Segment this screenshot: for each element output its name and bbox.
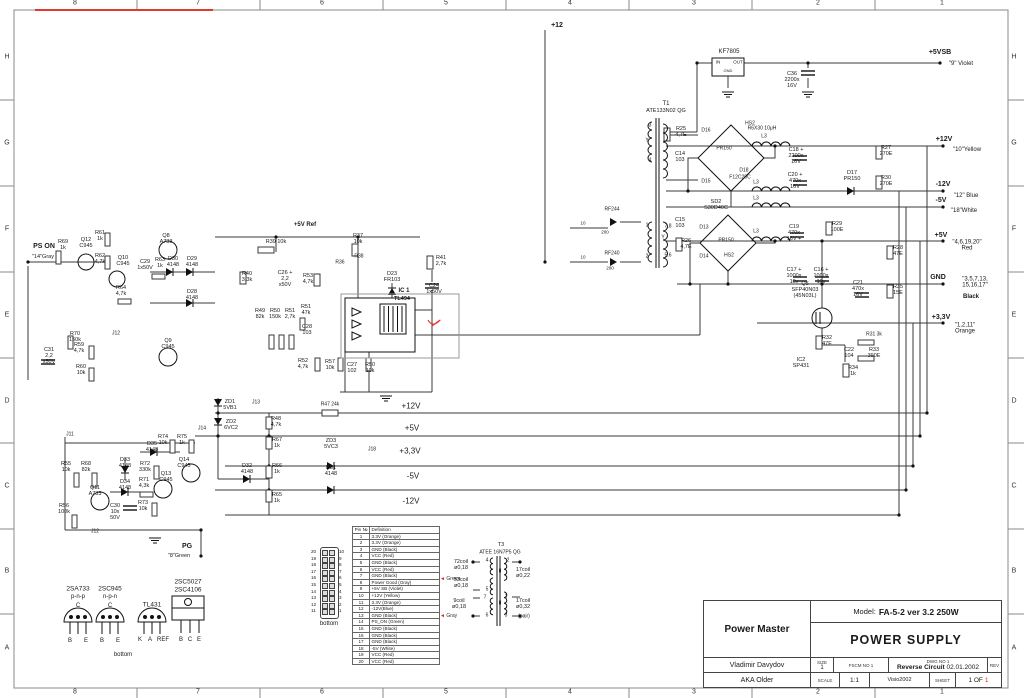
component-label: D15 xyxy=(701,179,710,184)
pin-definition: VCC (Red) xyxy=(370,566,440,573)
component-label: T1 xyxy=(662,101,669,107)
component-label: R75 1k xyxy=(177,435,187,447)
annotation-marker-icon: ◄ xyxy=(440,576,445,582)
connector-pin-left: 12 xyxy=(311,602,316,609)
pin-row: 13GND (Black) xyxy=(353,612,440,619)
border-col-label: 3 xyxy=(692,689,696,696)
pin-row: 10+12V (Yellow) xyxy=(353,592,440,599)
pin-number: 15 xyxy=(353,625,370,632)
component-label: +5V xyxy=(405,425,419,434)
component-label: p-n-p xyxy=(71,594,85,600)
component-label: D23 FR103 xyxy=(384,272,401,284)
connector-row: 111 xyxy=(311,608,345,615)
component-label: R50 150k xyxy=(269,309,281,321)
def-col-header: Definition xyxy=(370,527,440,534)
component-label: L3 xyxy=(761,134,767,139)
component-label: 200 xyxy=(601,231,609,236)
component-label: R38 xyxy=(354,254,363,259)
component-label: OUT xyxy=(733,61,743,66)
component-label: D17 PR150 xyxy=(844,171,861,183)
component-label: 3 xyxy=(505,613,508,618)
component-label: C26 + 2,2 x50V xyxy=(278,271,293,289)
border-row-label: B xyxy=(5,568,10,575)
connector-pin-left: 19 xyxy=(311,556,316,563)
component-label: R72 330k xyxy=(139,462,151,474)
dwg-name: Reverse Circuit xyxy=(897,664,945,671)
component-label: L3 xyxy=(753,180,759,185)
component-label: C18 + 2200x 16V xyxy=(789,148,804,166)
component-label: C30 10x 50V xyxy=(110,504,120,522)
component-label: GND xyxy=(724,69,733,73)
pin-number: 3 xyxy=(353,546,370,553)
tool-name: Visio2002 xyxy=(869,672,930,688)
component-label: R36 xyxy=(335,260,344,265)
component-label: Black xyxy=(963,294,979,300)
component-label: PG xyxy=(182,543,192,551)
component-label: D13 xyxy=(699,225,708,230)
connector-pin-right: 9 xyxy=(339,556,342,563)
component-label: R26 4,7E xyxy=(680,239,691,251)
rev-cell: REV xyxy=(987,657,1002,673)
border-row-label: D xyxy=(4,398,9,405)
pin-number: 18 xyxy=(353,645,370,652)
connector-row: 2010 xyxy=(311,549,345,556)
component-label: R39 10k xyxy=(266,240,287,246)
component-label: R51 47k xyxy=(301,305,311,317)
border-col-label: 8 xyxy=(73,0,77,7)
component-label: C20 + 470x 16V xyxy=(788,173,803,191)
dwg-date: 02.01.2002 xyxy=(946,664,979,671)
component-label: R28 47E xyxy=(893,246,903,258)
pin-row: 17GND (Black) xyxy=(353,639,440,646)
pin-definition: 3.3V (Orange) xyxy=(370,599,440,606)
pin-definition: GND (Black) xyxy=(370,573,440,580)
component-label: T3 xyxy=(498,543,504,549)
border-row-label: C xyxy=(1011,483,1016,490)
pin-row: 14PS_ON (Green) xyxy=(353,619,440,626)
border-row-label: E xyxy=(1012,312,1017,319)
component-label: R27 270E xyxy=(880,146,893,158)
connector-row: 199 xyxy=(311,556,345,563)
component-label: R64 4,7k xyxy=(116,286,126,298)
component-label: D34 4148 xyxy=(119,480,131,492)
component-label: TL494 xyxy=(394,297,410,303)
component-label: KF7805 xyxy=(718,49,739,55)
component-label: R69 1k xyxy=(58,240,68,252)
size-value: 1 xyxy=(820,665,823,671)
component-label: R68 82k xyxy=(81,462,91,474)
connector-pin-hole xyxy=(329,609,335,615)
pin-row: 18-5V (White) xyxy=(353,645,440,652)
pin-row: 19VCC (Red) xyxy=(353,652,440,659)
component-label: 7,8 xyxy=(665,224,672,229)
component-label: 2SC945 xyxy=(98,585,122,592)
component-label: SD2 S30D40C xyxy=(704,200,728,212)
connector-pin-right: 2 xyxy=(339,602,342,609)
pin-definition: 3.3V (Orange) xyxy=(370,540,440,547)
component-label: D18 xyxy=(739,168,748,173)
border-col-label: 4 xyxy=(568,689,572,696)
pin-definition: GND (Black) xyxy=(370,625,440,632)
pin-number: 13 xyxy=(353,612,370,619)
component-label: B xyxy=(68,638,72,644)
component-label: 7 xyxy=(484,595,487,600)
component-label: C xyxy=(108,603,112,609)
component-label: R60 10k xyxy=(76,365,86,377)
connector-pin-left: 15 xyxy=(311,582,316,589)
connector-pin-right: 10 xyxy=(339,549,344,556)
component-label: D33 4148 xyxy=(119,458,131,470)
component-label: 72coil ø0,18 xyxy=(454,560,468,572)
border-col-label: 1 xyxy=(940,0,944,7)
component-label: REF xyxy=(157,637,169,643)
component-label: E xyxy=(116,638,120,644)
border-col-label: 6 xyxy=(320,0,324,7)
component-label: Q5 SFP40N03 (45N03L) xyxy=(792,282,819,300)
component-label: R73 10k xyxy=(138,501,148,513)
border-row-label: B xyxy=(1012,568,1017,575)
component-label: D35 4148 xyxy=(146,442,158,454)
pin-definition-table: Pin №Definition13.3V (Orange)23.3V (Oran… xyxy=(352,526,440,665)
component-label: R53 4,7k xyxy=(303,274,313,286)
component-label: D32 4148 xyxy=(241,464,253,476)
model-value: FA-5-2 ver 3.2 250W xyxy=(879,607,959,617)
component-label: C xyxy=(76,603,80,609)
component-label: C27 102 xyxy=(347,363,357,375)
pin-row: 15GND (Black) xyxy=(353,625,440,632)
pin-number: 12 xyxy=(353,606,370,613)
component-label: C19 470x 16V + xyxy=(787,225,802,243)
pin-definition: PS_ON (Green) xyxy=(370,619,440,626)
company-name: Power Master xyxy=(703,600,811,658)
component-label: R32 47E xyxy=(822,336,832,348)
component-label: "3,5,7,13, 15,16,17" xyxy=(962,277,988,290)
connector-row: 166 xyxy=(311,575,345,582)
component-label: J12 xyxy=(112,331,120,336)
component-label: Q8 A733 xyxy=(160,234,173,246)
component-label: HS2 xyxy=(724,253,734,258)
component-label: R59 4,7k xyxy=(74,343,84,355)
component-label: Q13 C945 xyxy=(159,472,172,484)
connector-row: 177 xyxy=(311,569,345,576)
connector-row: 188 xyxy=(311,562,345,569)
component-label: R47 24k xyxy=(321,402,340,407)
component-label: II xyxy=(499,601,502,606)
component-label: 5 xyxy=(486,587,489,592)
component-label: C22 104 xyxy=(844,348,854,360)
component-label: II xyxy=(499,569,502,574)
atx-connector-drawing: 2010199188177166155144133122111bottom xyxy=(311,549,345,615)
component-label: "9" Violet xyxy=(949,61,973,67)
connector-pin-hole xyxy=(322,609,328,615)
component-label: 17coil ø0,22 xyxy=(516,568,530,580)
component-label: R61 1k xyxy=(95,231,105,243)
component-label: K xyxy=(138,637,142,643)
pin-row: 6VCC (Red) xyxy=(353,566,440,573)
border-row-label: G xyxy=(1011,140,1016,147)
component-label: 4 xyxy=(486,558,489,563)
author-alias: AKA Older xyxy=(703,672,811,688)
component-label: R35 15E xyxy=(893,285,903,297)
pin-row: 5GND (Black) xyxy=(353,559,440,566)
pin-col-header: Pin № xyxy=(353,527,370,534)
component-label: bottom xyxy=(114,652,132,658)
pin-number: 10 xyxy=(353,592,370,599)
component-label: ZD1 5VB1 xyxy=(223,400,236,412)
component-label: R31 3k xyxy=(866,332,882,337)
component-label: F12C20C xyxy=(729,175,750,180)
component-label: R50 10k xyxy=(365,363,375,375)
component-label: -5V xyxy=(936,197,947,205)
component-label: C24 1x50V xyxy=(426,284,442,296)
component-label: R52 4,7k xyxy=(298,359,308,371)
connector-pin-left: 20 xyxy=(311,549,316,556)
connector-row: 155 xyxy=(311,582,345,589)
pin-row: 23.3V (Orange) xyxy=(353,540,440,547)
pin-row: 113.3V (Orange) xyxy=(353,599,440,606)
component-label: R33 390E xyxy=(868,348,881,360)
component-label: 2SC4106 xyxy=(174,586,201,593)
component-label: +12V xyxy=(402,403,421,412)
annotation-marker-icon: ◄ xyxy=(440,613,445,619)
component-label: R67 1k xyxy=(272,438,282,450)
pin-definition: GND (Black) xyxy=(370,632,440,639)
component-label: 17coil ø0,32 xyxy=(516,599,530,611)
pin-row: 20VCC (Red) xyxy=(353,658,440,665)
component-label: C15 103 xyxy=(675,218,685,230)
component-label: 200 xyxy=(606,267,614,272)
sheet-count: 1 OF xyxy=(968,677,982,684)
rev-label: REV xyxy=(990,663,999,668)
component-label: D30 4148 xyxy=(167,257,179,269)
component-label: R66 1k xyxy=(272,464,282,476)
component-label: IN xyxy=(716,61,721,66)
connector-pin-right: 1 xyxy=(339,608,342,615)
component-label: R63 1k xyxy=(155,258,165,270)
component-label: L3 xyxy=(753,229,759,234)
component-label: R30 270E xyxy=(880,176,893,188)
component-label: R6X30 10μH xyxy=(748,126,777,131)
component-label: "4,6,19,20" Red xyxy=(952,240,981,253)
pin-definition: +5V SB (Violet) xyxy=(370,586,440,593)
border-col-label: 5 xyxy=(444,0,448,7)
component-label: J13 xyxy=(252,400,260,405)
border-row-label: H xyxy=(1011,54,1016,61)
pin-number: 4 xyxy=(353,553,370,560)
pin-row: 16GND (Black) xyxy=(353,632,440,639)
pin-row: 8Power Good (Gray) xyxy=(353,579,440,586)
component-label: "10"Yellow xyxy=(953,147,981,153)
pin-number: 19 xyxy=(353,652,370,659)
border-col-label: 7 xyxy=(196,0,200,7)
border-col-label: 7 xyxy=(196,689,200,696)
component-label: R74 10k xyxy=(158,435,168,447)
border-row-label: G xyxy=(4,140,9,147)
component-label: PR150 xyxy=(718,238,733,243)
pin-number: 20 xyxy=(353,658,370,665)
connector-pin-right: 8 xyxy=(339,562,342,569)
component-label: D16 xyxy=(701,128,710,133)
component-label: B xyxy=(179,637,183,643)
component-label: L3 xyxy=(753,196,759,201)
component-label: 9coil ø0,18 xyxy=(452,599,466,611)
component-label: R41 2,7k xyxy=(436,256,446,268)
component-label: 5,6 xyxy=(665,253,672,258)
component-label: 1 xyxy=(505,594,508,599)
connector-pin-left: 11 xyxy=(311,608,316,615)
connector-pin-right: 6 xyxy=(339,575,342,582)
author-name: Vladimir Davydov xyxy=(703,657,811,673)
pin-number: 8 xyxy=(353,579,370,586)
connector-pin-right: 3 xyxy=(339,595,342,602)
pin-definition: VCC (Red) xyxy=(370,658,440,665)
component-label: 10 xyxy=(580,222,585,227)
pin-definition: GND (Black) xyxy=(370,546,440,553)
scale-label: SCALE xyxy=(810,672,840,688)
border-col-label: 6 xyxy=(320,689,324,696)
connector-row: 133 xyxy=(311,595,345,602)
connector-pin-left: 13 xyxy=(311,595,316,602)
component-label: D28 4148 xyxy=(186,290,198,302)
component-label: "18"White xyxy=(951,208,977,214)
pin-row: 12-12V(Blue) xyxy=(353,606,440,613)
component-label: +3,3V xyxy=(399,448,420,457)
pin-number: 1 xyxy=(353,533,370,540)
sheet-label: SHEET xyxy=(929,672,956,688)
drawing-title: POWER SUPPLY xyxy=(810,622,1002,658)
component-label: "1,2,11" Orange xyxy=(955,323,976,336)
connector-caption: bottom xyxy=(309,621,349,627)
component-label: RF244 xyxy=(604,207,619,212)
component-label: A xyxy=(148,637,152,643)
component-label: Q10 C945 xyxy=(116,256,129,268)
annotation-text: Gray xyxy=(446,613,457,619)
component-label: +5V Ref xyxy=(294,222,316,228)
connector-pin-right: 5 xyxy=(339,582,342,589)
pin-number: 7 xyxy=(353,573,370,580)
component-label: R51 2,7k xyxy=(285,309,295,321)
pin-annotation: ◄ Green xyxy=(440,576,460,582)
pin-definition: VCC (Red) xyxy=(370,553,440,560)
sheet-value: 1 OF 1 xyxy=(955,672,1002,688)
border-row-label: H xyxy=(4,54,9,61)
component-label: R71 4,3k xyxy=(139,478,149,490)
component-label: D14 xyxy=(699,254,708,259)
component-label: E xyxy=(84,638,88,644)
scale-value: 1:1 xyxy=(839,672,870,688)
component-label: R40 3,3k xyxy=(242,272,252,284)
border-row-label: E xyxy=(5,312,10,319)
component-label: C28 103 xyxy=(302,325,312,337)
component-label: R29 100E xyxy=(831,222,844,234)
pin-table: Pin №Definition13.3V (Orange)23.3V (Oran… xyxy=(352,526,440,665)
component-label: C14 103 xyxy=(675,152,685,164)
dwg-value: Reverse Circuit 02.01.2002 xyxy=(897,664,979,671)
pin-definition: GND (Black) xyxy=(370,639,440,646)
border-row-label: F xyxy=(1012,226,1016,233)
component-label: R49 82k xyxy=(255,309,265,321)
pin-row: 13.3V (Orange) xyxy=(353,533,440,540)
component-label: GND xyxy=(930,274,946,282)
component-label: PS ON xyxy=(33,243,55,251)
component-label: "14"Gray xyxy=(32,255,54,261)
component-label: ATEE 16N7P5 QG xyxy=(479,550,520,555)
pin-row: 9+5V SB (Violet) xyxy=(353,586,440,593)
component-label: C31 2,2 x50V xyxy=(43,348,56,366)
connector-pin-left: 18 xyxy=(311,562,316,569)
component-label: R55 10k xyxy=(61,462,71,474)
pin-definition: -5V (White) xyxy=(370,645,440,652)
connector-pin-left: 16 xyxy=(311,575,316,582)
connector-pin-left: 17 xyxy=(311,569,316,576)
component-label: 2 xyxy=(507,558,510,563)
component-label: +12 xyxy=(551,22,563,30)
border-col-label: 5 xyxy=(444,689,448,696)
component-label: n-p-n xyxy=(103,594,117,600)
component-label: ATE133N02 QG xyxy=(646,109,686,115)
component-label: Y xyxy=(661,235,664,240)
component-label: J14 xyxy=(198,426,206,431)
component-label: R34 1k xyxy=(848,366,858,378)
component-label: C xyxy=(188,637,192,643)
component-label: C36 2200x 16V xyxy=(785,72,800,90)
model-label: Model: xyxy=(853,607,876,616)
component-label: R48 4,7k xyxy=(271,417,281,429)
component-label: TL431 xyxy=(143,601,161,608)
component-label: PR150 xyxy=(716,146,731,151)
component-label: ZD2 6VC2 xyxy=(224,420,238,432)
pin-definition: GND (Black) xyxy=(370,612,440,619)
pin-number: 11 xyxy=(353,599,370,606)
pin-definition: VCC (Red) xyxy=(370,652,440,659)
pin-annotation: ◄ Gray xyxy=(440,613,457,619)
pin-number: 16 xyxy=(353,632,370,639)
fscm-cell: FSCM NO 1 xyxy=(833,657,889,673)
pin-row: 3GND (Black) xyxy=(353,546,440,553)
component-label: 4 xyxy=(649,158,652,163)
component-label: Q9 C945 xyxy=(161,339,174,351)
border-col-label: 1 xyxy=(940,689,944,696)
component-label: +5VSB xyxy=(929,49,951,57)
pin-definition: 3.3V (Orange) xyxy=(370,533,440,540)
component-label: R62 4,7k xyxy=(95,254,105,266)
pin-number: 14 xyxy=(353,619,370,626)
pin-definition: Power Good (Gray) xyxy=(370,579,440,586)
border-row-label: D xyxy=(1011,398,1016,405)
component-label: J18 xyxy=(368,447,376,452)
component-label: 2 xyxy=(646,254,649,259)
size-cell: SIZE 1 xyxy=(810,657,834,673)
border-col-label: 4 xyxy=(568,0,572,7)
border-row-label: F xyxy=(5,226,9,233)
schematic-sheet: 8877665544332211HHGGFFEEDDCCBBAA +12KF78… xyxy=(0,0,1024,698)
connector-row: 122 xyxy=(311,602,345,609)
border-col-label: 2 xyxy=(816,0,820,7)
component-label: 6 xyxy=(486,613,489,618)
component-label: R57 10k xyxy=(325,360,335,372)
component-label: B xyxy=(100,638,104,644)
pin-number: 2 xyxy=(353,540,370,547)
component-label: J11 xyxy=(66,432,74,437)
component-label: R56 100k xyxy=(58,504,70,516)
component-label: R37 10k xyxy=(353,234,363,246)
pin-number: 9 xyxy=(353,586,370,593)
component-label: 10 xyxy=(580,256,585,261)
border-row-label: A xyxy=(1012,645,1017,652)
border-col-label: 2 xyxy=(816,689,820,696)
component-label: E xyxy=(197,637,201,643)
component-label: 2SA733 xyxy=(66,585,89,592)
